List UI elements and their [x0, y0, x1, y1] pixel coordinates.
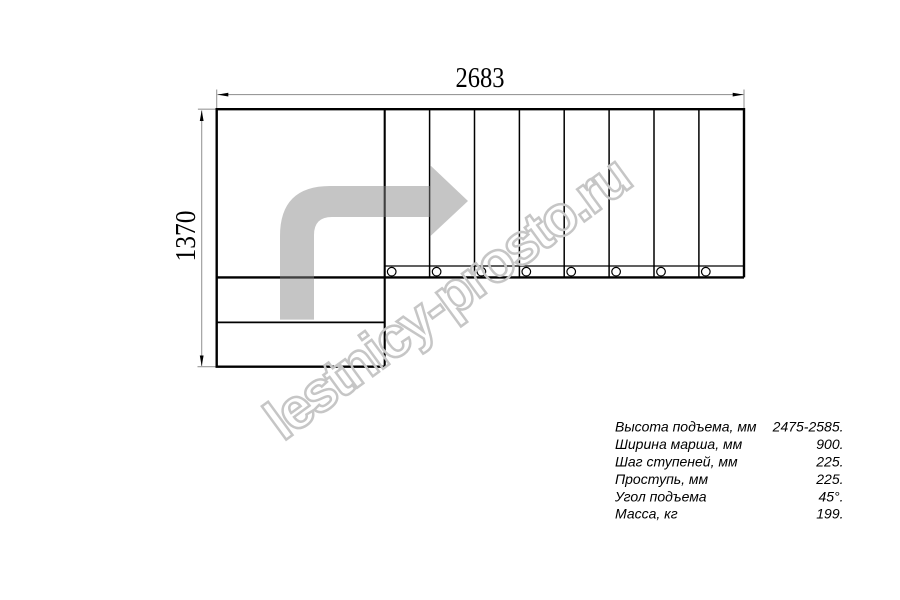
- svg-text:225.: 225.: [815, 471, 843, 487]
- svg-text:Ширина марша, мм: Ширина марша, мм: [615, 436, 743, 452]
- svg-text:1370: 1370: [170, 211, 202, 262]
- svg-text:900.: 900.: [816, 436, 843, 452]
- svg-text:Проступь, мм: Проступь, мм: [615, 471, 709, 487]
- svg-text:Угол подъема: Угол подъема: [614, 488, 707, 504]
- svg-text:45°.: 45°.: [818, 488, 843, 504]
- svg-text:225.: 225.: [815, 454, 843, 470]
- svg-text:Высота подъема, мм: Высота подъема, мм: [615, 419, 757, 435]
- svg-text:Шаг ступеней, мм: Шаг ступеней, мм: [615, 454, 738, 470]
- svg-text:199.: 199.: [816, 506, 843, 522]
- svg-text:2683: 2683: [456, 62, 505, 94]
- svg-text:2475-2585.: 2475-2585.: [772, 419, 844, 435]
- svg-text:Масса, кг: Масса, кг: [615, 506, 678, 522]
